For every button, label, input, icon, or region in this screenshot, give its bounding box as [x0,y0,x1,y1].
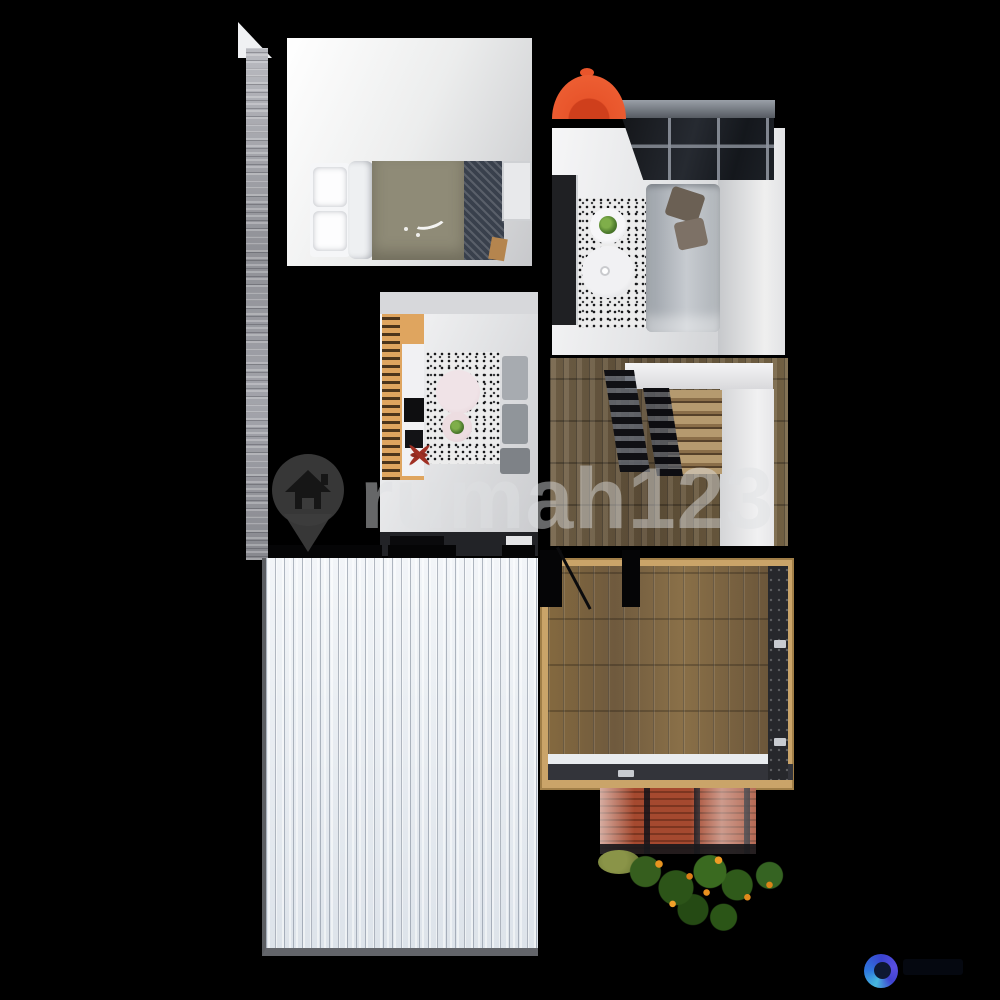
bedroom [287,38,532,266]
pillow [313,167,347,207]
deck-railing-bottom [548,764,793,780]
logo-center [874,962,891,979]
hall-wall-band [625,363,773,389]
deck-edge-strip [548,754,770,764]
deck-railing-right [768,566,788,780]
wall-stub [540,550,562,607]
blue-swirl-logo [864,954,898,988]
duvet-logo-graphic [411,209,448,233]
grey-chair [502,404,528,444]
glass-canopy [622,118,774,180]
nightstand [502,161,532,221]
bed-pillows [310,163,350,257]
canopy-edge-beam [612,100,775,118]
garden-shrubs [625,845,795,940]
pillow [313,211,347,251]
duvet-fold [348,161,374,259]
grey-chair [502,356,528,400]
wood-chair [488,237,508,261]
floor-plan-render: rumah123 [0,0,1000,1000]
orange-umbrella [552,75,626,119]
potted-plant [450,420,464,434]
faint-logo-wordmark [903,959,963,975]
railing-bracket [618,770,634,777]
metal-roof [262,558,538,956]
bed-duvet [372,161,464,260]
potted-plant [599,216,617,234]
side-table-large [436,370,480,414]
watermark-brand-text: rumah123 [360,456,774,542]
wall-stub [622,550,640,607]
house-pin-icon [271,452,345,556]
concrete-side-wall [246,48,268,560]
family-room-floor-strip [380,292,538,314]
duvet-dot [416,233,420,237]
tv-screen [404,398,424,422]
railing-bracket [774,738,786,746]
railing-bracket [774,640,786,648]
table-cup [600,266,610,276]
tv-cabinet [552,175,578,325]
duvet-dot [404,227,408,231]
